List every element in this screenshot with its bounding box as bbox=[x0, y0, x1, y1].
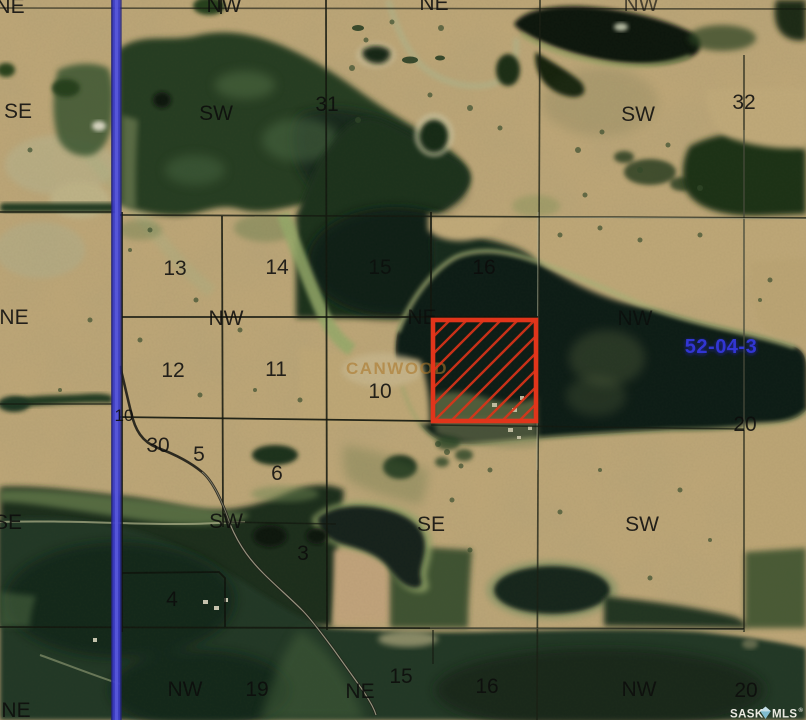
svg-text:MLS: MLS bbox=[772, 709, 797, 720]
svg-text:SASK: SASK bbox=[730, 709, 764, 720]
svg-text:®: ® bbox=[799, 707, 804, 714]
